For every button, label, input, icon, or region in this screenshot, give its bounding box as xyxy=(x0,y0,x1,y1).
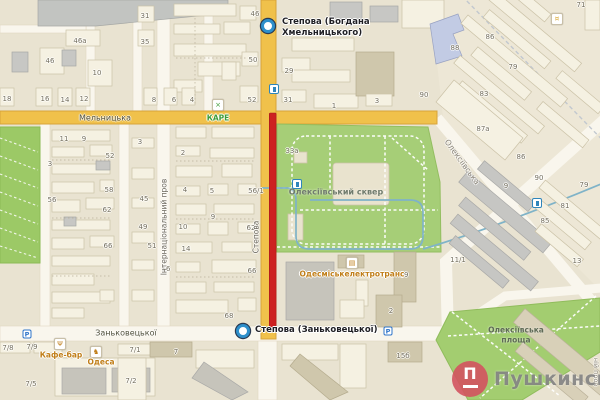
marker-top-label: Степова (Богдана Хмельницького) xyxy=(282,17,370,40)
marker-bottom-label: Степова (Заньковецької) xyxy=(255,325,377,336)
brand-name: Пушкинская xyxy=(494,368,600,390)
closure-line xyxy=(269,113,276,329)
marker-stepova-zankovetskoi[interactable] xyxy=(236,324,250,338)
map-canvas[interactable]: 46а4610313518161412465086452293113888679… xyxy=(0,0,600,400)
brand-logo: П xyxy=(452,361,488,397)
brand-watermark: П Пушкинская xyxy=(452,361,600,397)
marker-stepova-khmelnytskoho[interactable] xyxy=(261,19,275,33)
brand-letter: П xyxy=(463,366,476,382)
map-base xyxy=(0,0,600,400)
